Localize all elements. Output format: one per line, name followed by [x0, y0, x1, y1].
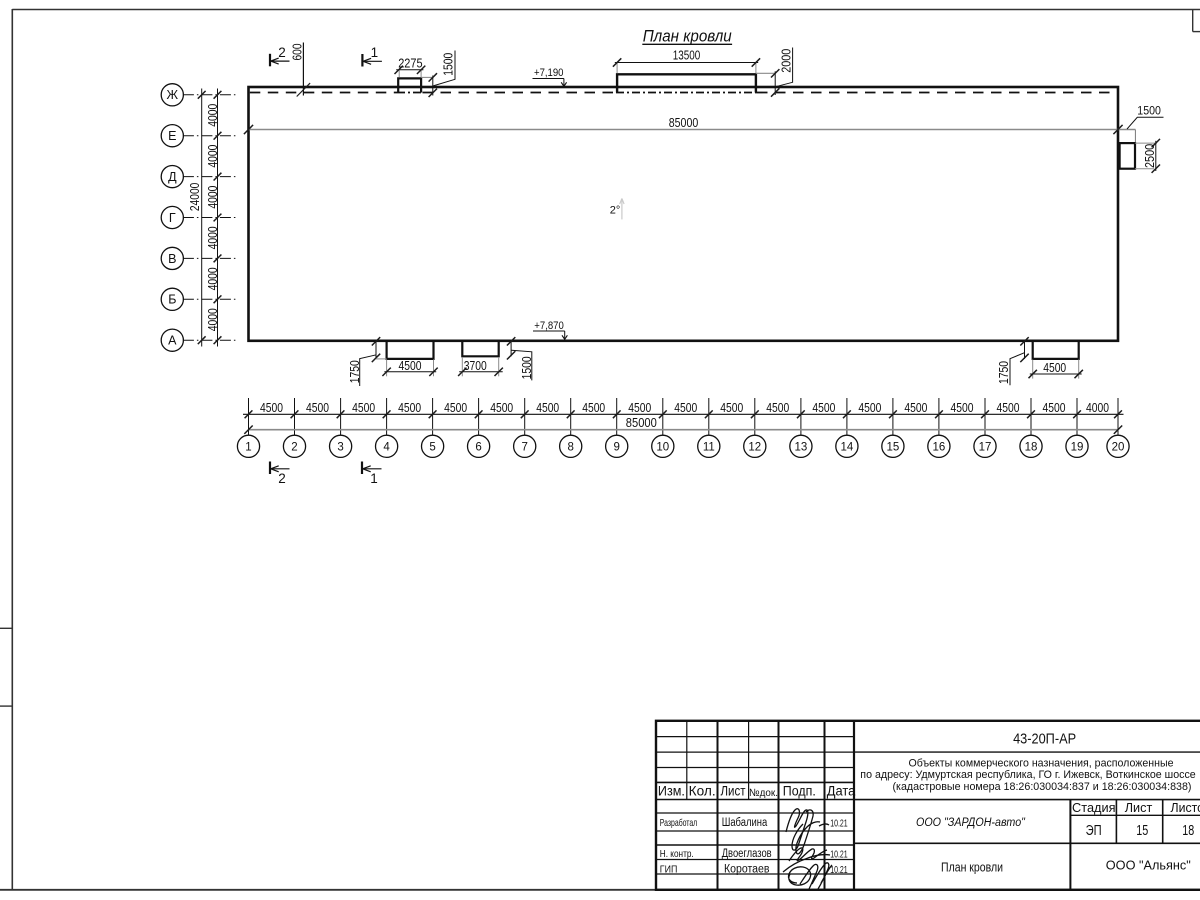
svg-text:План кровли: План кровли	[941, 861, 1003, 875]
svg-text:Листов: Листов	[1171, 800, 1200, 815]
svg-text:4500: 4500	[904, 401, 927, 415]
svg-text:4500: 4500	[812, 401, 835, 415]
svg-text:Изм.: Изм.	[658, 783, 685, 798]
svg-text:4500: 4500	[536, 401, 559, 415]
svg-text:4500: 4500	[260, 401, 283, 415]
svg-text:ГИП: ГИП	[660, 863, 678, 875]
svg-text:10.21: 10.21	[830, 864, 848, 876]
svg-text:1750: 1750	[348, 360, 362, 383]
svg-text:+7,190: +7,190	[534, 67, 564, 79]
svg-text:4000: 4000	[1086, 401, 1109, 415]
svg-text:ООО "Альянс": ООО "Альянс"	[1106, 858, 1191, 873]
svg-text:4000: 4000	[206, 226, 220, 249]
svg-text:А: А	[168, 334, 177, 348]
svg-text:ООО "ЗАРДОН-авто": ООО "ЗАРДОН-авто"	[916, 817, 1026, 829]
svg-text:Двоеглазов: Двоеглазов	[722, 848, 772, 860]
svg-text:4500: 4500	[306, 401, 329, 415]
svg-text:19: 19	[1071, 441, 1084, 453]
svg-text:10: 10	[656, 441, 669, 453]
svg-text:Г: Г	[169, 211, 176, 225]
svg-text:85000: 85000	[626, 416, 657, 430]
svg-text:Дата: Дата	[827, 783, 856, 798]
svg-text:5: 5	[429, 441, 435, 453]
svg-text:4500: 4500	[766, 401, 789, 415]
svg-text:Д: Д	[168, 170, 177, 184]
svg-text:4500: 4500	[582, 401, 605, 415]
svg-text:Разработал: Разработал	[660, 817, 697, 829]
svg-text:2: 2	[278, 45, 286, 60]
svg-text:3: 3	[337, 441, 343, 453]
svg-text:4500: 4500	[352, 401, 375, 415]
svg-text:17: 17	[979, 441, 992, 453]
svg-text:4500: 4500	[1043, 361, 1066, 375]
svg-text:7: 7	[521, 441, 527, 453]
svg-text:+7,870: +7,870	[534, 320, 564, 332]
svg-text:2000: 2000	[780, 49, 794, 73]
svg-text:8: 8	[567, 441, 573, 453]
svg-text:1750: 1750	[997, 361, 1011, 384]
svg-text:10.21: 10.21	[830, 817, 848, 829]
svg-text:Объекты коммерческого назначен: Объекты коммерческого назначения, распол…	[909, 758, 1174, 770]
svg-text:18: 18	[1025, 441, 1038, 453]
svg-text:1500: 1500	[1137, 106, 1161, 118]
svg-text:4000: 4000	[206, 308, 220, 331]
svg-text:4500: 4500	[1043, 401, 1066, 415]
svg-text:6: 6	[475, 441, 481, 453]
svg-text:9: 9	[613, 441, 619, 453]
svg-text:Лист: Лист	[721, 783, 746, 798]
svg-text:16: 16	[933, 441, 946, 453]
svg-text:Е: Е	[168, 129, 176, 143]
svg-text:4500: 4500	[628, 401, 651, 415]
svg-text:4500: 4500	[674, 401, 697, 415]
svg-text:20: 20	[1112, 441, 1125, 453]
svg-text:85000: 85000	[669, 116, 699, 130]
svg-text:1500: 1500	[520, 356, 534, 379]
svg-text:4500: 4500	[720, 401, 743, 415]
svg-text:Кол.: Кол.	[689, 783, 716, 798]
svg-text:12: 12	[748, 441, 761, 453]
svg-text:4500: 4500	[399, 359, 422, 373]
svg-text:4500: 4500	[490, 401, 513, 415]
svg-text:2: 2	[291, 441, 297, 453]
svg-text:10.21: 10.21	[830, 849, 848, 861]
svg-text:4000: 4000	[206, 104, 220, 127]
svg-text:4000: 4000	[206, 145, 220, 168]
svg-text:по адресу: Удмуртская республи: по адресу: Удмуртская республика, ГО г. …	[860, 769, 1195, 781]
svg-text:4500: 4500	[951, 401, 974, 415]
svg-text:Ж: Ж	[167, 88, 179, 102]
svg-text:Лист: Лист	[1125, 800, 1153, 815]
svg-text:Подп.: Подп.	[783, 783, 816, 798]
svg-text:24000: 24000	[188, 183, 202, 212]
svg-text:600: 600	[291, 43, 305, 60]
svg-text:4500: 4500	[997, 401, 1020, 415]
svg-text:4000: 4000	[206, 186, 220, 209]
svg-text:3700: 3700	[464, 359, 487, 373]
svg-text:2275: 2275	[398, 56, 422, 70]
svg-text:(кадастровые номера 18:26:0300: (кадастровые номера 18:26:030034:837 и 1…	[893, 781, 1192, 793]
svg-text:Шабалина: Шабалина	[722, 817, 768, 829]
svg-text:Н. контр.: Н. контр.	[660, 848, 694, 860]
svg-text:15: 15	[1136, 822, 1148, 839]
svg-text:11: 11	[703, 441, 715, 453]
svg-text:4: 4	[383, 441, 390, 453]
svg-text:14: 14	[841, 441, 854, 453]
svg-text:4500: 4500	[444, 401, 467, 415]
svg-text:2500: 2500	[1143, 144, 1157, 168]
svg-text:В: В	[168, 252, 176, 266]
svg-text:1: 1	[245, 441, 251, 453]
svg-text:№док.: №док.	[749, 787, 778, 799]
svg-text:13: 13	[795, 441, 808, 453]
svg-text:ЭП: ЭП	[1086, 822, 1102, 839]
svg-text:15: 15	[887, 441, 900, 453]
svg-text:18: 18	[1182, 822, 1194, 839]
svg-text:4000: 4000	[206, 267, 220, 290]
svg-text:2: 2	[278, 471, 286, 486]
svg-text:2°: 2°	[610, 204, 621, 216]
svg-text:4500: 4500	[398, 401, 421, 415]
svg-text:1: 1	[371, 45, 379, 60]
svg-text:План кровли: План кровли	[643, 27, 732, 46]
svg-text:Стадия: Стадия	[1072, 800, 1116, 815]
svg-text:43-20П-АР: 43-20П-АР	[1013, 732, 1076, 748]
svg-text:Б: Б	[168, 293, 176, 307]
svg-text:13500: 13500	[673, 49, 701, 63]
svg-text:4500: 4500	[858, 401, 881, 415]
svg-text:1500: 1500	[442, 53, 456, 76]
svg-text:Коротаев: Коротаев	[724, 863, 770, 875]
svg-text:1: 1	[370, 471, 378, 486]
